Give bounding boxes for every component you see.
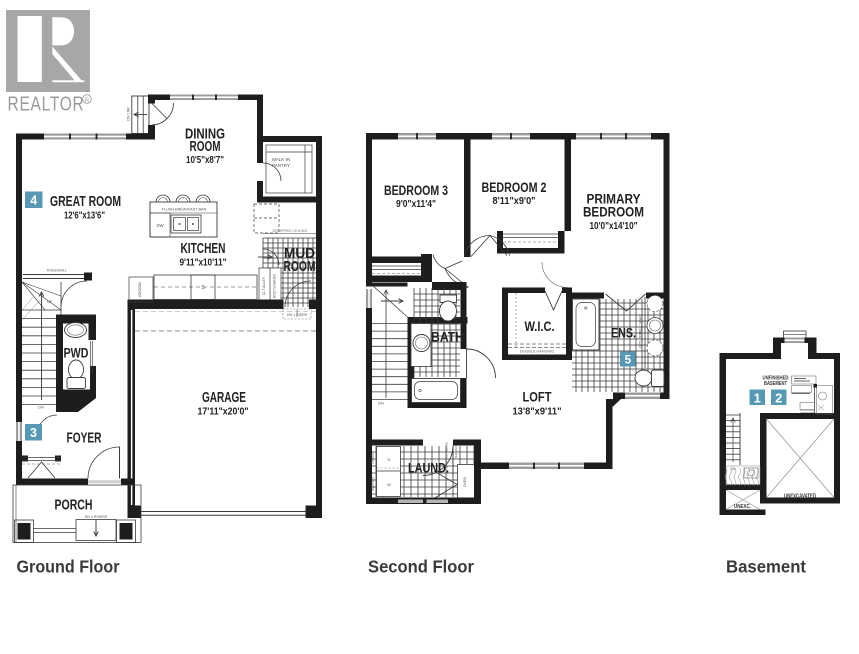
svg-text:DROPPED CEILING: DROPPED CEILING: [272, 229, 307, 233]
svg-text:S: S: [201, 285, 205, 291]
svg-text:BATH: BATH: [431, 330, 464, 345]
svg-text:DN 4 RISERS: DN 4 RISERS: [85, 515, 108, 519]
svg-text:8'11"x9'0": 8'11"x9'0": [493, 196, 536, 207]
svg-text:10'5"x8'7": 10'5"x8'7": [186, 154, 224, 166]
svg-text:D: D: [388, 457, 391, 462]
svg-text:10'0"x14'10": 10'0"x14'10": [590, 221, 638, 232]
svg-text:17'11"x20'0": 17'11"x20'0": [198, 406, 249, 418]
svg-text:DW: DW: [157, 223, 164, 228]
svg-text:BEDROOM 2: BEDROOM 2: [482, 180, 547, 195]
svg-text:UNEXC.: UNEXC.: [734, 504, 751, 510]
svg-text:FOYER: FOYER: [67, 431, 102, 447]
svg-text:BEDROOM 3: BEDROOM 3: [384, 183, 448, 198]
svg-text:BEDROOM: BEDROOM: [583, 205, 644, 220]
svg-text:LAUND.: LAUND.: [408, 461, 449, 476]
svg-text:FLUSH BREAKFAST BAR: FLUSH BREAKFAST BAR: [162, 208, 207, 212]
svg-text:1: 1: [754, 391, 761, 406]
svg-text:GARAGE: GARAGE: [202, 390, 246, 406]
svg-text:W.I.C.: W.I.C.: [525, 319, 555, 334]
svg-text:PORCH: PORCH: [55, 498, 93, 514]
svg-text:Second Floor: Second Floor: [368, 557, 474, 577]
svg-text:SHELVES: SHELVES: [454, 446, 458, 459]
svg-text:DN: DN: [378, 402, 384, 406]
svg-text:W: W: [387, 482, 391, 487]
svg-text:UNEXCAVATED: UNEXCAVATED: [784, 493, 816, 500]
svg-text:UP: UP: [47, 300, 53, 304]
svg-text:DOUBLE HANGING: DOUBLE HANGING: [520, 350, 554, 354]
svg-text:ROOM: ROOM: [284, 259, 316, 275]
svg-text:OPT. DOUBLE SINKS: OPT. DOUBLE SINKS: [639, 313, 643, 347]
svg-text:9'0"x11'4": 9'0"x11'4": [396, 199, 436, 210]
svg-text:3: 3: [30, 426, 37, 440]
svg-text:BROOM: BROOM: [138, 282, 142, 296]
svg-text:R: R: [85, 97, 90, 104]
svg-text:13'8"x9'11": 13'8"x9'11": [513, 407, 562, 418]
svg-text:Basement: Basement: [726, 557, 806, 577]
svg-text:DN 16R: DN 16R: [127, 107, 131, 121]
svg-text:DN: DN: [38, 406, 44, 410]
svg-text:9'11"x10'11": 9'11"x10'11": [180, 257, 227, 269]
svg-text:REALTOR: REALTOR: [8, 93, 85, 116]
svg-text:Ground Floor: Ground Floor: [17, 557, 120, 577]
svg-text:WASHER: WASHER: [371, 476, 375, 491]
svg-text:CLT ALLEY: CLT ALLEY: [262, 276, 266, 295]
svg-text:2: 2: [775, 391, 782, 406]
svg-text:OVEN: OVEN: [463, 477, 467, 488]
svg-text:BOOTS/SHOES: BOOTS/SHOES: [273, 273, 277, 298]
svg-text:DRYER: DRYER: [371, 452, 375, 464]
svg-text:PANTRY: PANTRY: [272, 163, 290, 168]
svg-text:KNEEWALL: KNEEWALL: [47, 269, 68, 273]
svg-text:4: 4: [30, 193, 37, 207]
svg-text:BASEMENT: BASEMENT: [764, 381, 787, 387]
svg-text:12'6"x13'6": 12'6"x13'6": [64, 210, 105, 222]
svg-text:WALK-IN: WALK-IN: [272, 157, 291, 162]
svg-text:KITCHEN: KITCHEN: [181, 241, 226, 257]
svg-text:5: 5: [625, 355, 632, 367]
svg-text:ENS.: ENS.: [611, 326, 636, 341]
svg-text:LOFT: LOFT: [523, 390, 553, 405]
svg-text:GREAT ROOM: GREAT ROOM: [50, 194, 121, 210]
svg-text:ROOM: ROOM: [190, 139, 221, 155]
svg-text:PWD: PWD: [64, 346, 89, 361]
